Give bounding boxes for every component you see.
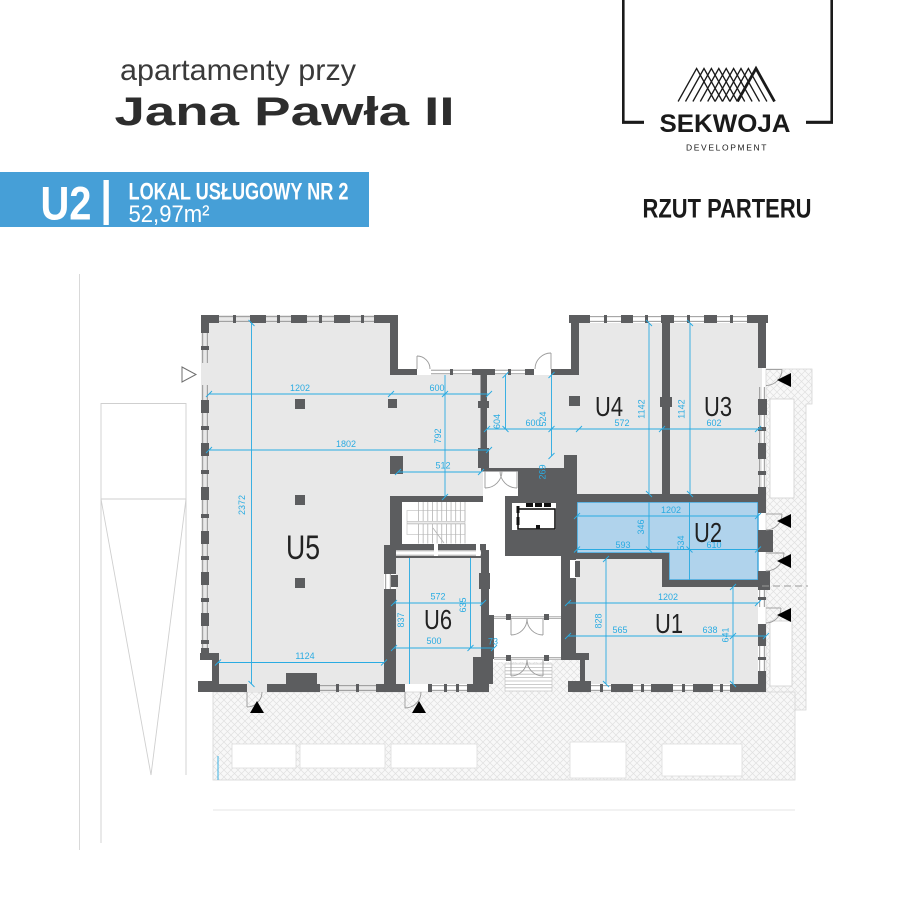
svg-text:RZUT PARTERU: RZUT PARTERU — [643, 194, 812, 224]
svg-text:2372: 2372 — [237, 495, 247, 515]
svg-text:1202: 1202 — [661, 505, 681, 515]
svg-text:DEVELOPMENT: DEVELOPMENT — [686, 143, 767, 153]
svg-text:534: 534 — [676, 535, 686, 550]
svg-text:641: 641 — [721, 627, 731, 642]
svg-text:1124: 1124 — [295, 651, 314, 661]
svg-text:1802: 1802 — [336, 439, 356, 449]
svg-text:524: 524 — [538, 411, 548, 426]
svg-text:U2: U2 — [694, 517, 722, 548]
svg-text:U4: U4 — [595, 391, 623, 422]
svg-text:1142: 1142 — [677, 399, 687, 418]
svg-text:1202: 1202 — [658, 592, 678, 602]
svg-text:U6: U6 — [424, 604, 452, 635]
svg-text:593: 593 — [615, 540, 630, 550]
svg-text:1142: 1142 — [637, 399, 647, 418]
svg-text:638: 638 — [702, 625, 717, 635]
svg-text:837: 837 — [396, 612, 406, 627]
svg-text:604: 604 — [492, 414, 502, 429]
svg-text:U5: U5 — [286, 529, 320, 567]
svg-text:U3: U3 — [704, 391, 732, 422]
svg-text:828: 828 — [594, 613, 604, 628]
svg-text:635: 635 — [458, 597, 468, 612]
svg-text:565: 565 — [612, 625, 627, 635]
svg-text:346: 346 — [636, 519, 646, 534]
svg-text:792: 792 — [433, 428, 443, 443]
svg-text:500: 500 — [426, 636, 441, 646]
svg-text:512: 512 — [435, 461, 450, 471]
svg-text:269: 269 — [538, 464, 548, 479]
svg-text:73: 73 — [488, 637, 498, 647]
svg-text:572: 572 — [430, 592, 445, 602]
svg-text:SEKWOJA: SEKWOJA — [660, 110, 791, 138]
svg-text:600: 600 — [429, 383, 444, 393]
svg-text:1202: 1202 — [290, 383, 310, 393]
svg-text:U1: U1 — [655, 608, 683, 639]
